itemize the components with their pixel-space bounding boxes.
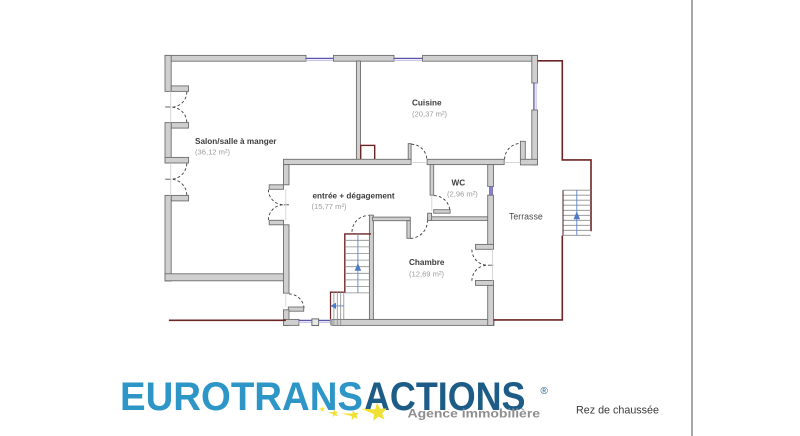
svg-text:Chambre: Chambre <box>409 258 445 267</box>
svg-text:(15,77 m²): (15,77 m²) <box>312 202 347 211</box>
svg-text:WC: WC <box>452 178 466 187</box>
svg-text:Salon/salle à manger: Salon/salle à manger <box>195 137 277 146</box>
svg-text:entrée + dégagement: entrée + dégagement <box>313 191 395 200</box>
svg-text:(20,37 m²): (20,37 m²) <box>412 109 447 118</box>
svg-text:(36,12 m²): (36,12 m²) <box>195 148 230 157</box>
svg-text:(2,96 m²): (2,96 m²) <box>447 190 478 199</box>
svg-text:Terrasse: Terrasse <box>509 211 543 221</box>
svg-text:®: ® <box>541 386 549 397</box>
svg-text:Rez de chaussée: Rez de chaussée <box>576 405 659 417</box>
svg-text:EUROTRANS: EUROTRANS <box>120 375 363 419</box>
svg-text:(12,69 m²): (12,69 m²) <box>409 270 444 279</box>
svg-text:Cuisine: Cuisine <box>412 98 442 107</box>
svg-text:Agence immobilière: Agence immobilière <box>408 407 541 421</box>
